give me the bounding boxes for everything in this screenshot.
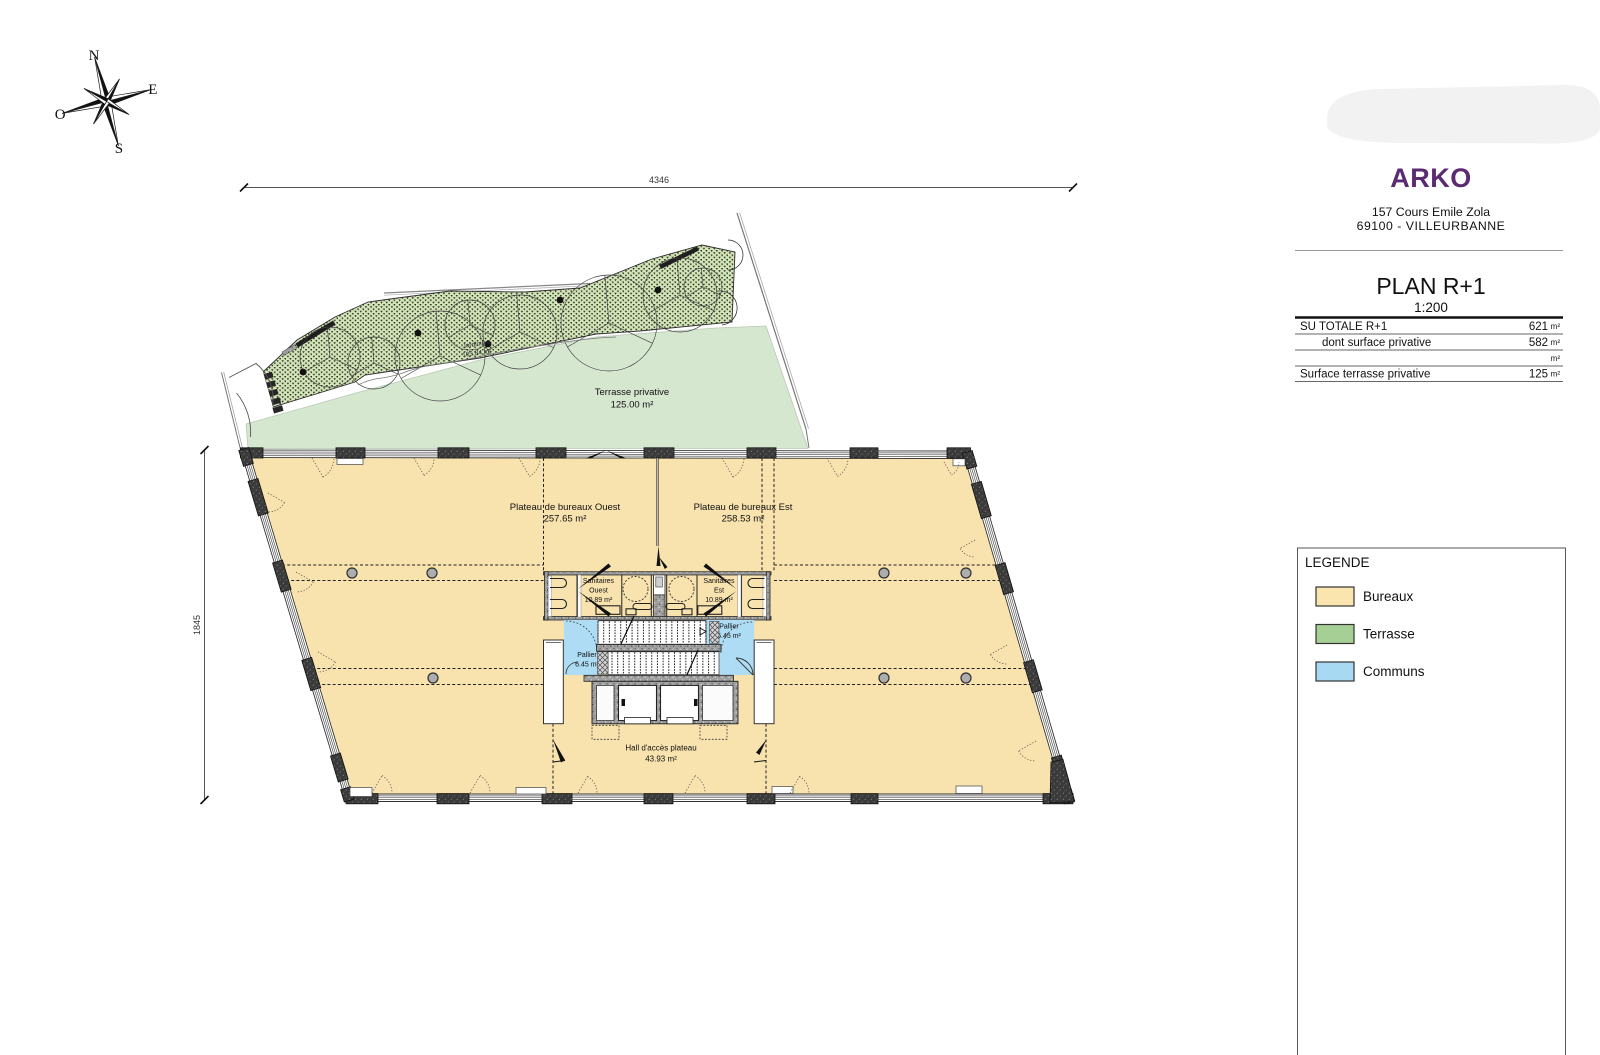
svg-text:582: 582 <box>1529 337 1548 349</box>
svg-text:Plateau de bureaux Est: Plateau de bureaux Est <box>694 502 793 513</box>
svg-text:Pallier: Pallier <box>719 624 739 631</box>
svg-text:Bureaux: Bureaux <box>1363 589 1414 604</box>
svg-text:257.65 m²: 257.65 m² <box>544 514 587 525</box>
svg-text:Hall d'accès plateau: Hall d'accès plateau <box>625 744 696 753</box>
svg-text:Ouest: Ouest <box>589 588 608 595</box>
svg-text:1845: 1845 <box>192 615 202 635</box>
svg-text:m²: m² <box>1551 322 1561 331</box>
svg-text:Terrasse privative: Terrasse privative <box>595 387 669 398</box>
svg-text:Est: Est <box>714 588 724 595</box>
svg-text:6.45 m²: 6.45 m² <box>575 662 599 669</box>
svg-text:10.89 m²: 10.89 m² <box>705 597 733 604</box>
svg-text:Sanitaires: Sanitaires <box>583 578 615 585</box>
svg-text:dont surface privative: dont surface privative <box>1322 337 1431 349</box>
svg-text:43.93 m²: 43.93 m² <box>645 755 677 764</box>
svg-text:m²: m² <box>1551 354 1561 363</box>
svg-text:1:200: 1:200 <box>1414 300 1448 315</box>
svg-text:O: O <box>55 107 66 123</box>
svg-text:258.53 m²: 258.53 m² <box>722 514 765 525</box>
svg-text:LEGENDE: LEGENDE <box>1305 555 1370 570</box>
svg-text:N: N <box>89 48 100 64</box>
svg-text:Terrasse: Terrasse <box>1363 627 1415 642</box>
svg-text:Surface terrasse privative: Surface terrasse privative <box>1300 369 1430 381</box>
svg-text:10.89 m²: 10.89 m² <box>585 597 613 604</box>
svg-text:Communs: Communs <box>1363 664 1425 679</box>
svg-text:621: 621 <box>1529 321 1548 333</box>
svg-text:157 Cours Emile Zola: 157 Cours Emile Zola <box>1372 205 1490 219</box>
svg-text:Pallier: Pallier <box>577 652 597 659</box>
svg-text:m²: m² <box>1551 338 1561 347</box>
svg-text:69100 - VILLEURBANNE: 69100 - VILLEURBANNE <box>1357 219 1506 233</box>
svg-text:E: E <box>148 82 157 98</box>
svg-text:125: 125 <box>1529 369 1548 381</box>
svg-text:Plateau de bureaux Ouest: Plateau de bureaux Ouest <box>510 502 621 513</box>
svg-text:125.00 m²: 125.00 m² <box>611 400 654 411</box>
svg-text:ARKO: ARKO <box>1390 163 1472 193</box>
svg-text:Sanitaires: Sanitaires <box>703 578 735 585</box>
svg-text:S: S <box>115 141 123 157</box>
svg-text:PLAN R+1: PLAN R+1 <box>1376 273 1485 299</box>
svg-text:6.45 m²: 6.45 m² <box>717 633 741 640</box>
svg-text:m²: m² <box>1551 370 1561 379</box>
svg-text:4346: 4346 <box>649 175 669 185</box>
svg-text:SU TOTALE R+1: SU TOTALE R+1 <box>1300 321 1387 333</box>
